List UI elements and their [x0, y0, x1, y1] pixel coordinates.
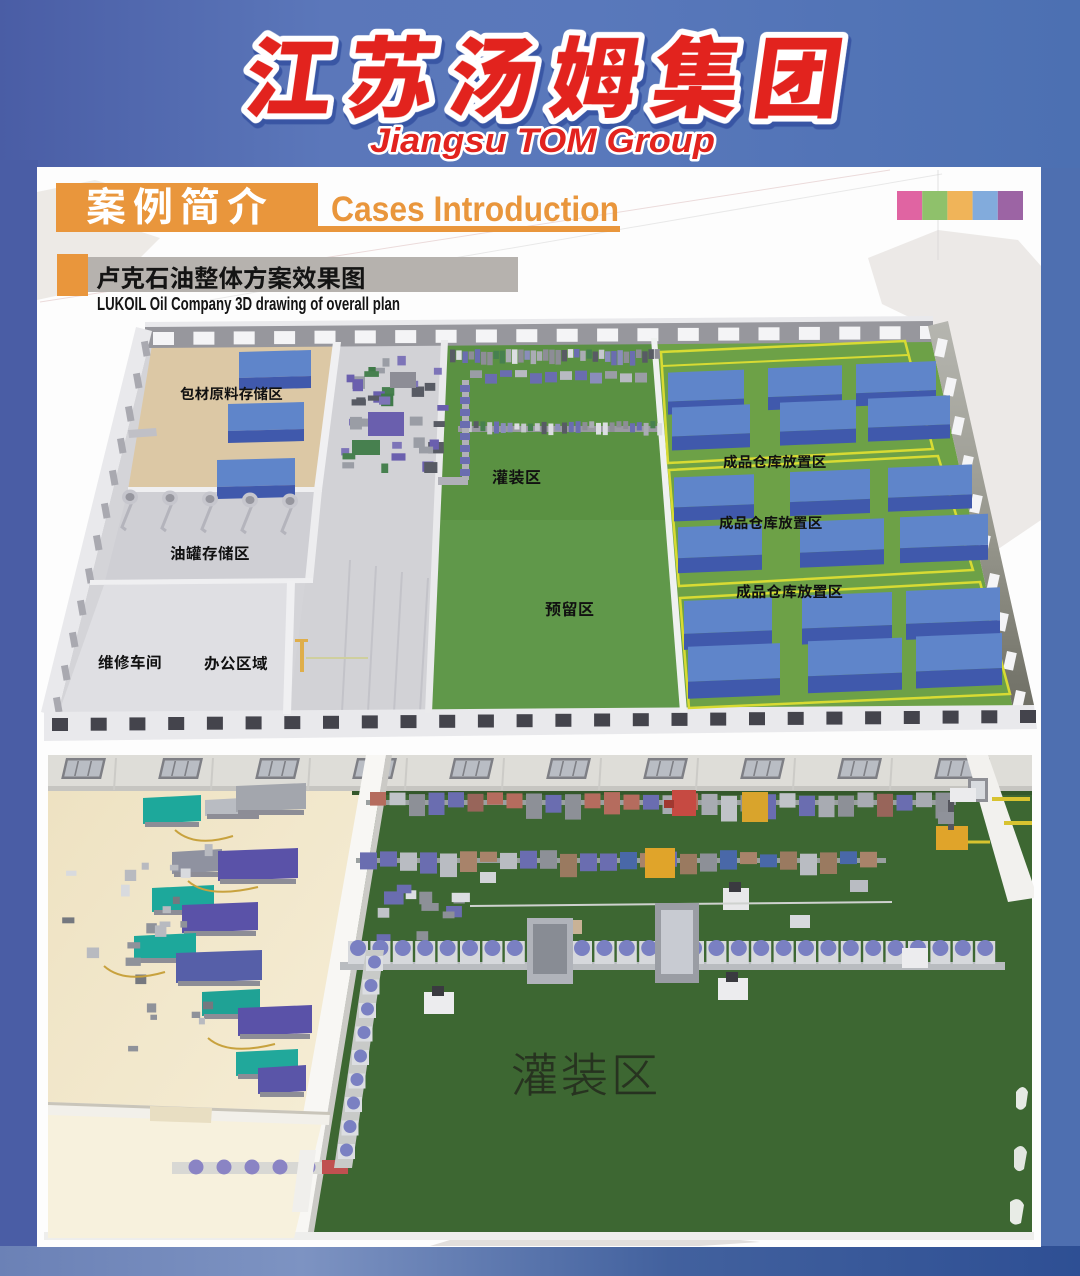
svg-text:Cases Introduction: Cases Introduction — [331, 190, 619, 229]
svg-text:LUKOIL Oil Company 3D drawing: LUKOIL Oil Company 3D drawing of overall… — [97, 294, 400, 314]
svg-text:Jiangsu TOM Group: Jiangsu TOM Group — [370, 122, 715, 160]
